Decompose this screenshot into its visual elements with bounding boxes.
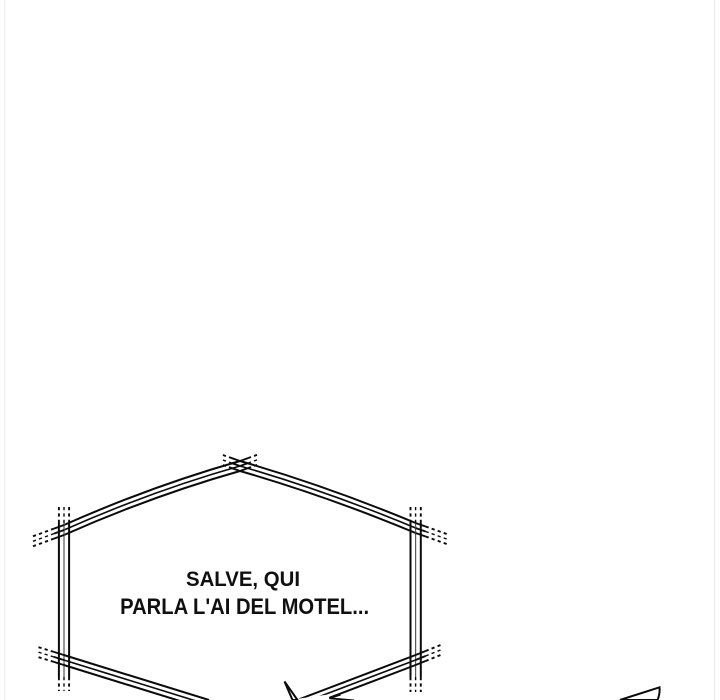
svg-text:PARLA L'AI DEL MOTEL...: PARLA L'AI DEL MOTEL... — [120, 594, 369, 619]
svg-text:SALVE, QUI: SALVE, QUI — [186, 567, 300, 591]
